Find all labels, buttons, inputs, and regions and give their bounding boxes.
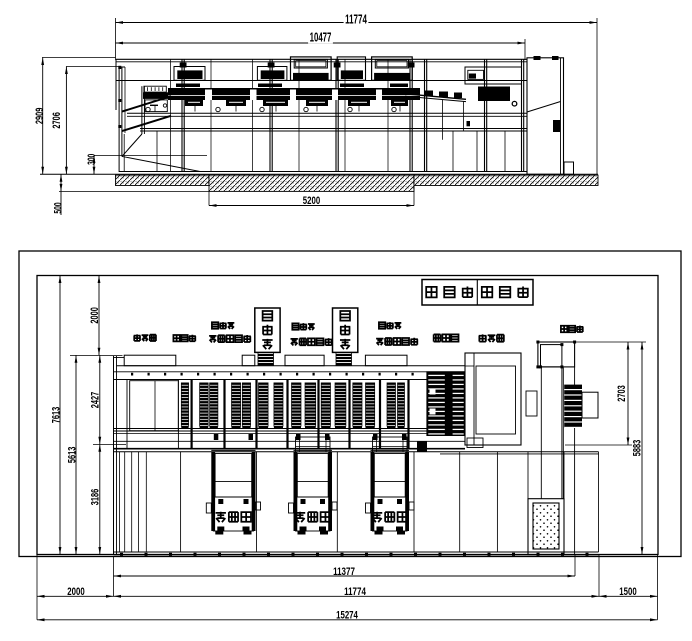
- svg-text:10477: 10477: [310, 30, 332, 44]
- svg-text:11774: 11774: [344, 586, 366, 598]
- svg-text:11377: 11377: [333, 566, 355, 578]
- svg-text:2909: 2909: [34, 108, 46, 124]
- svg-text:500: 500: [53, 202, 65, 213]
- svg-text:2703: 2703: [616, 385, 628, 401]
- svg-text:3186: 3186: [90, 489, 102, 505]
- svg-text:1500: 1500: [619, 586, 636, 598]
- svg-text:7613: 7613: [51, 407, 63, 423]
- svg-text:2000: 2000: [67, 586, 84, 598]
- svg-text:15274: 15274: [336, 610, 358, 622]
- svg-text:2427: 2427: [90, 392, 102, 408]
- svg-text:300: 300: [86, 154, 98, 165]
- svg-text:5883: 5883: [632, 440, 644, 456]
- svg-text:5200: 5200: [303, 195, 320, 207]
- svg-text:5613: 5613: [66, 447, 78, 463]
- svg-text:2706: 2706: [51, 112, 63, 128]
- svg-text:11774: 11774: [345, 12, 367, 26]
- svg-text:2000: 2000: [89, 307, 101, 323]
